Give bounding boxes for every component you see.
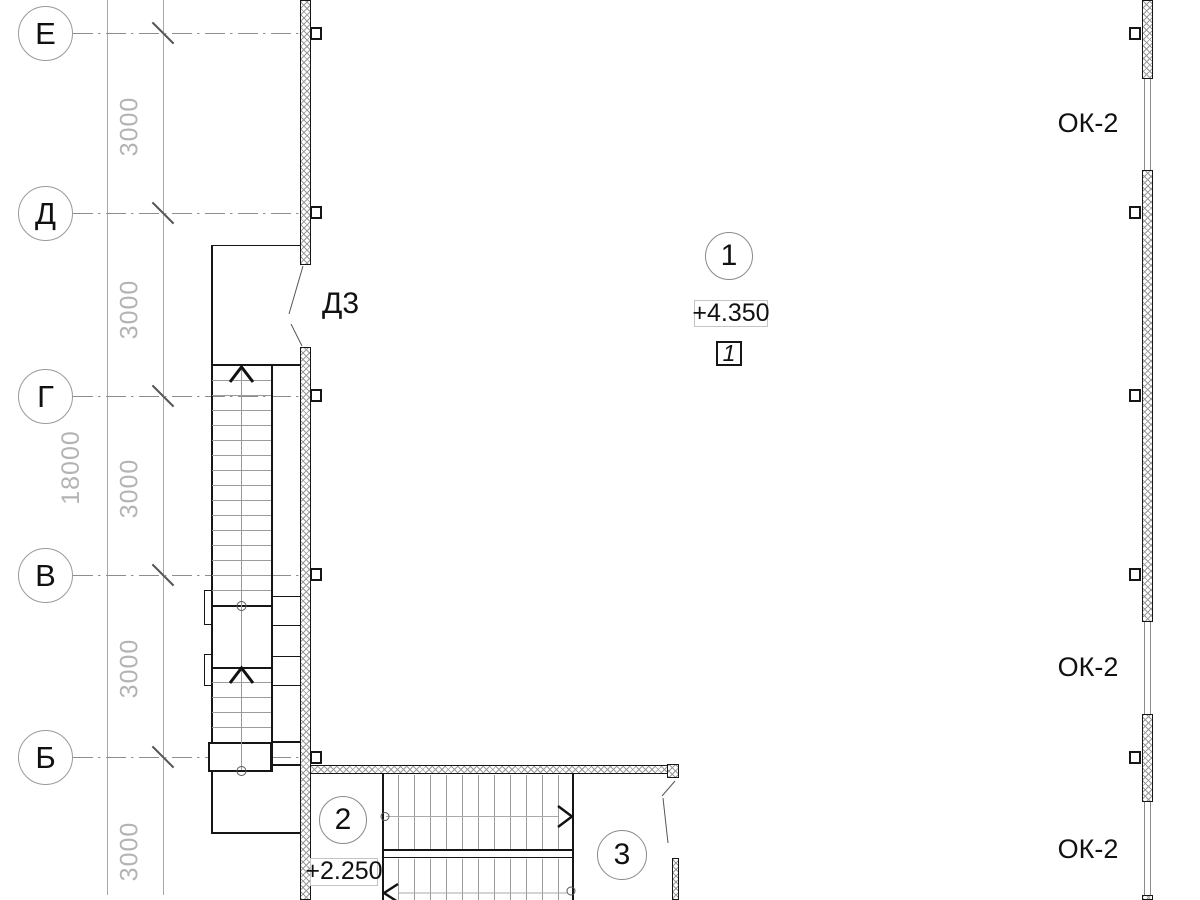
linework-overlay [0, 0, 1200, 900]
stair-direction-arrow-left [384, 884, 398, 900]
floor-plan-canvas: 3000 3000 3000 3000 3000 18000 Е Д Г В Б… [0, 0, 1200, 900]
walk-line-node [567, 887, 575, 895]
door-leaf-line [289, 266, 303, 314]
door-leaf-line [662, 781, 675, 796]
stair-direction-arrow-right [558, 806, 572, 827]
door-leaf-line [663, 798, 668, 843]
door-leaf-line [291, 324, 302, 346]
